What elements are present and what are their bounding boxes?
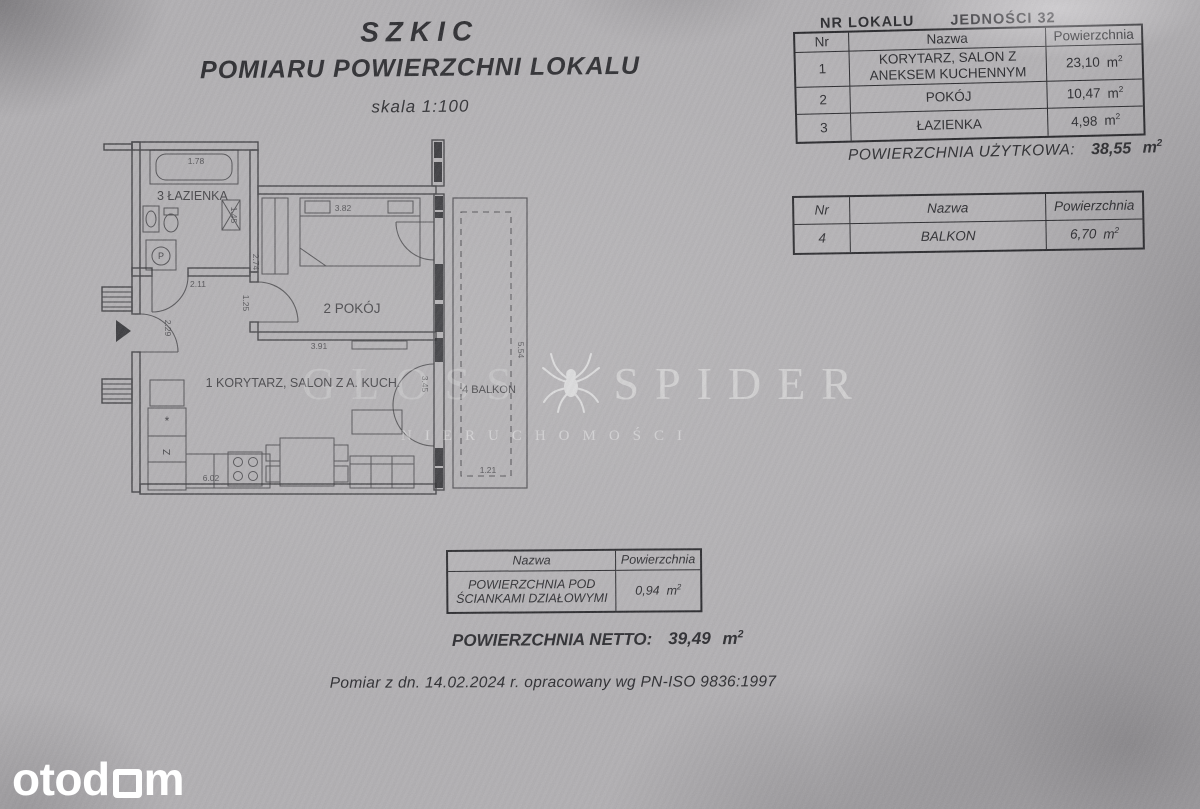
walls <box>102 140 444 494</box>
dim-bathtub: 1.78 <box>188 156 205 166</box>
dim-balcony-width: 1.21 <box>480 465 497 475</box>
dimension-labels: 1.78 2.11 2.29 1.45 2.74 1.25 3.82 3.91 … <box>163 156 526 483</box>
entrance-arrow-icon <box>116 320 131 342</box>
logo-square-icon <box>113 769 142 798</box>
scanned-sketch-page: SZKIC POMIARU POWIERZCHNI LOKALU skala 1… <box>0 0 1200 809</box>
dim-living-width: 6.02 <box>203 473 220 483</box>
hob-mark: * <box>165 414 170 428</box>
dim-shaft: 1.45 <box>229 207 239 224</box>
dim-hall-width: 2.11 <box>190 279 206 289</box>
logo-text-pre: otod <box>12 752 110 806</box>
fridge-label: Z <box>162 449 173 455</box>
dim-balcony-height: 5.54 <box>516 342 526 359</box>
otodom-logo: otod m <box>12 752 184 806</box>
room-label-living: 1 KORYTARZ, SALON Z A. KUCH. <box>206 376 401 390</box>
washer-label: P <box>158 251 164 261</box>
dim-bedroom-door: 1.25 <box>241 295 251 312</box>
room-label-bedroom: 2 POKÓJ <box>323 301 380 316</box>
floor-plan: 3 ŁAZIENKA 2 POKÓJ 1 KORYTARZ, SALON Z A… <box>0 0 1200 809</box>
dim-bedroom-bottom: 3.91 <box>311 341 328 351</box>
balcony-outline <box>453 198 527 488</box>
dim-bedroom-width: 3.82 <box>335 203 352 213</box>
doors <box>140 222 434 446</box>
dim-hall-height: 2.29 <box>163 320 173 337</box>
logo-text-post: m <box>144 752 184 806</box>
room-label-bathroom: 3 ŁAZIENKA <box>157 189 229 203</box>
plan-labels: 3 ŁAZIENKA 2 POKÓJ 1 KORYTARZ, SALON Z A… <box>157 189 516 455</box>
dim-bedroom-wall: 2.74 <box>251 254 261 271</box>
room-label-balcony: 4 BALKON <box>462 384 516 396</box>
dim-balcony-door: 3.45 <box>420 376 430 393</box>
